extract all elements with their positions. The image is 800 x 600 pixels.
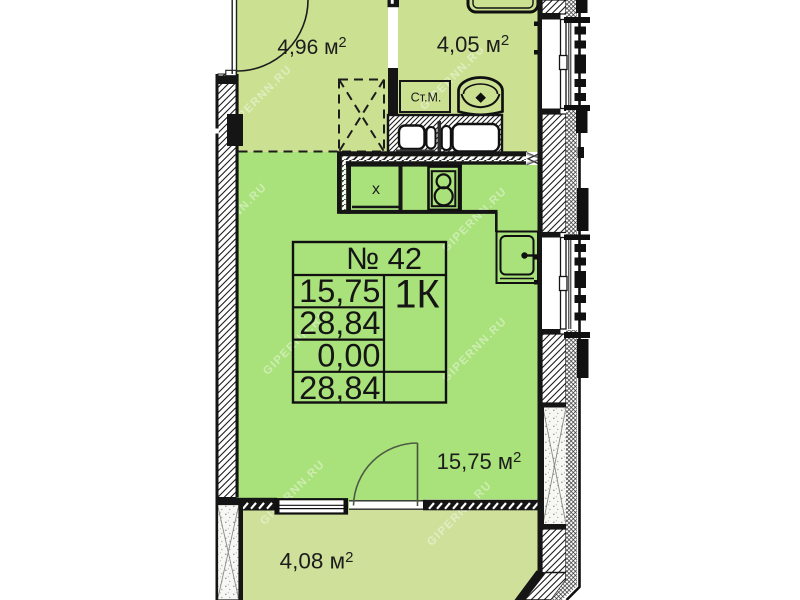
svg-text:4,05 м2: 4,05 м2: [437, 32, 509, 57]
svg-text:28,84: 28,84: [299, 370, 380, 406]
svg-text:15,75: 15,75: [299, 273, 380, 309]
svg-text:4,08 м2: 4,08 м2: [280, 549, 354, 574]
svg-text:Ст.М.: Ст.М.: [411, 91, 442, 105]
svg-text:4,96 м2: 4,96 м2: [277, 35, 346, 59]
svg-text:0,00: 0,00: [317, 338, 380, 374]
svg-text:№ 42: № 42: [346, 241, 422, 276]
svg-text:1К: 1К: [395, 273, 440, 317]
svg-text:15,75 м2: 15,75 м2: [437, 449, 522, 474]
svg-text:x: x: [372, 181, 380, 198]
svg-text:28,84: 28,84: [299, 305, 380, 341]
